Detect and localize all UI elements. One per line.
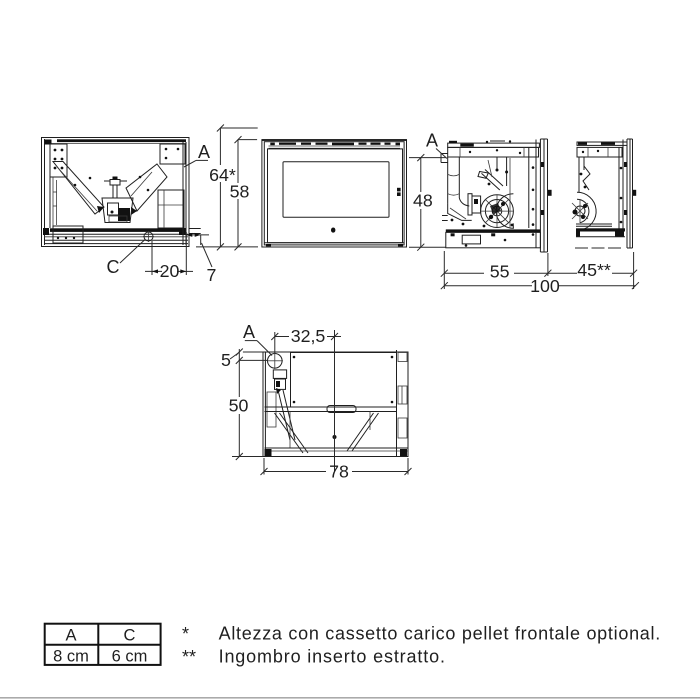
svg-text:55: 55 bbox=[490, 262, 510, 282]
svg-text:5: 5 bbox=[221, 350, 231, 370]
svg-text:45**: 45** bbox=[577, 260, 611, 280]
svg-text:A: A bbox=[243, 322, 255, 342]
svg-text:C: C bbox=[107, 257, 120, 277]
svg-text:6 cm: 6 cm bbox=[112, 648, 148, 666]
svg-text:32,5: 32,5 bbox=[291, 326, 326, 346]
svg-text:Altezza con cassetto carico pe: Altezza con cassetto carico pellet front… bbox=[219, 624, 661, 644]
svg-text:*: * bbox=[182, 624, 189, 644]
svg-text:78: 78 bbox=[329, 462, 349, 482]
svg-text:20: 20 bbox=[160, 261, 180, 281]
svg-text:C: C bbox=[124, 627, 136, 645]
svg-text:**: ** bbox=[182, 647, 196, 667]
svg-text:48: 48 bbox=[413, 190, 433, 210]
svg-text:A: A bbox=[65, 627, 76, 645]
svg-text:100: 100 bbox=[530, 276, 560, 296]
svg-text:58: 58 bbox=[230, 182, 250, 202]
svg-text:A: A bbox=[426, 131, 438, 151]
svg-text:Ingombro inserto estratto.: Ingombro inserto estratto. bbox=[219, 647, 446, 667]
svg-text:8 cm: 8 cm bbox=[53, 648, 89, 666]
svg-text:A: A bbox=[198, 142, 210, 162]
svg-text:7: 7 bbox=[207, 265, 217, 285]
svg-text:50: 50 bbox=[229, 396, 249, 416]
